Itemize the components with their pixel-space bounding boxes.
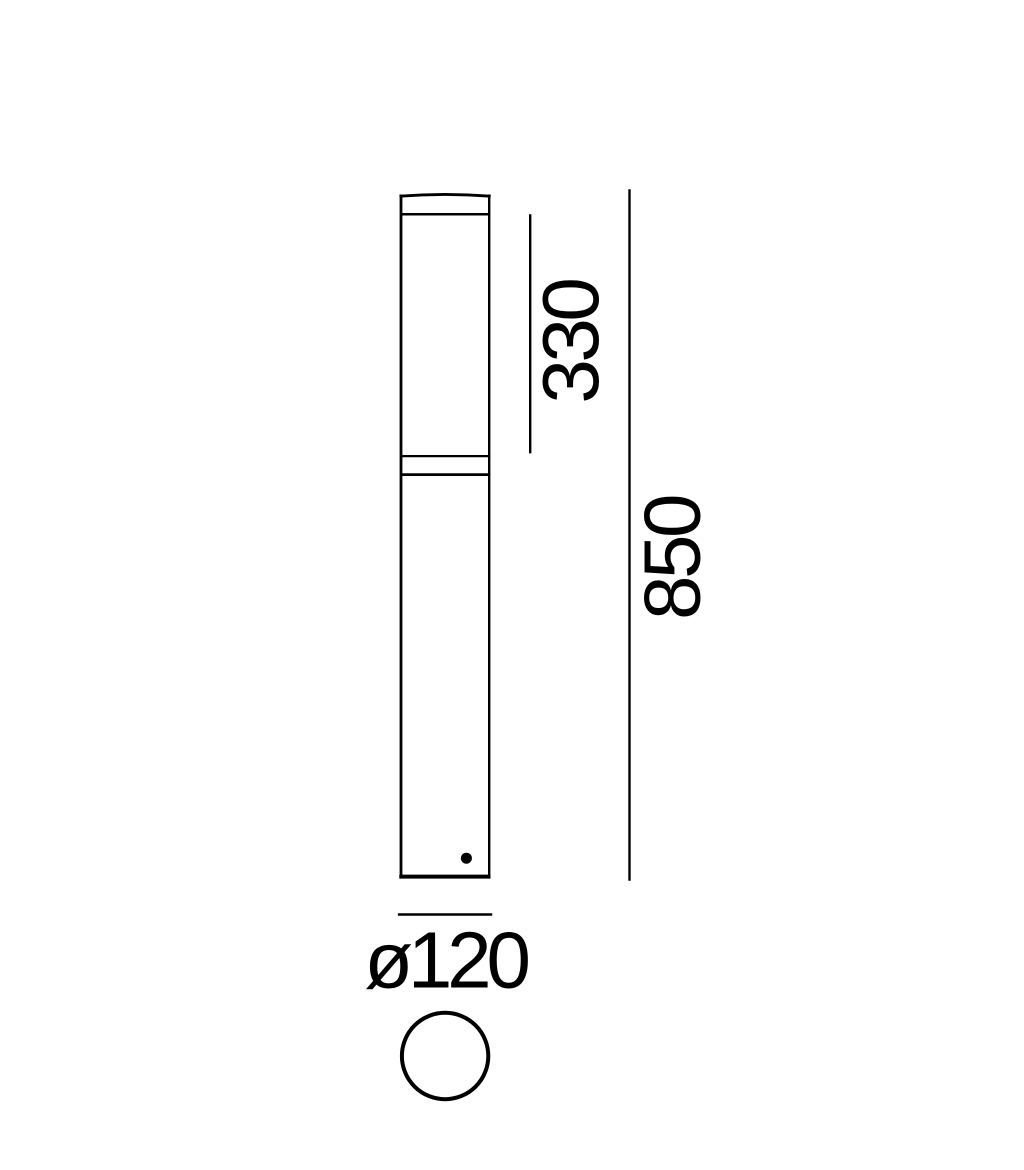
svg-text:330: 330 xyxy=(526,280,615,404)
svg-text:ø120: ø120 xyxy=(364,916,528,1005)
svg-text:850: 850 xyxy=(628,496,717,620)
